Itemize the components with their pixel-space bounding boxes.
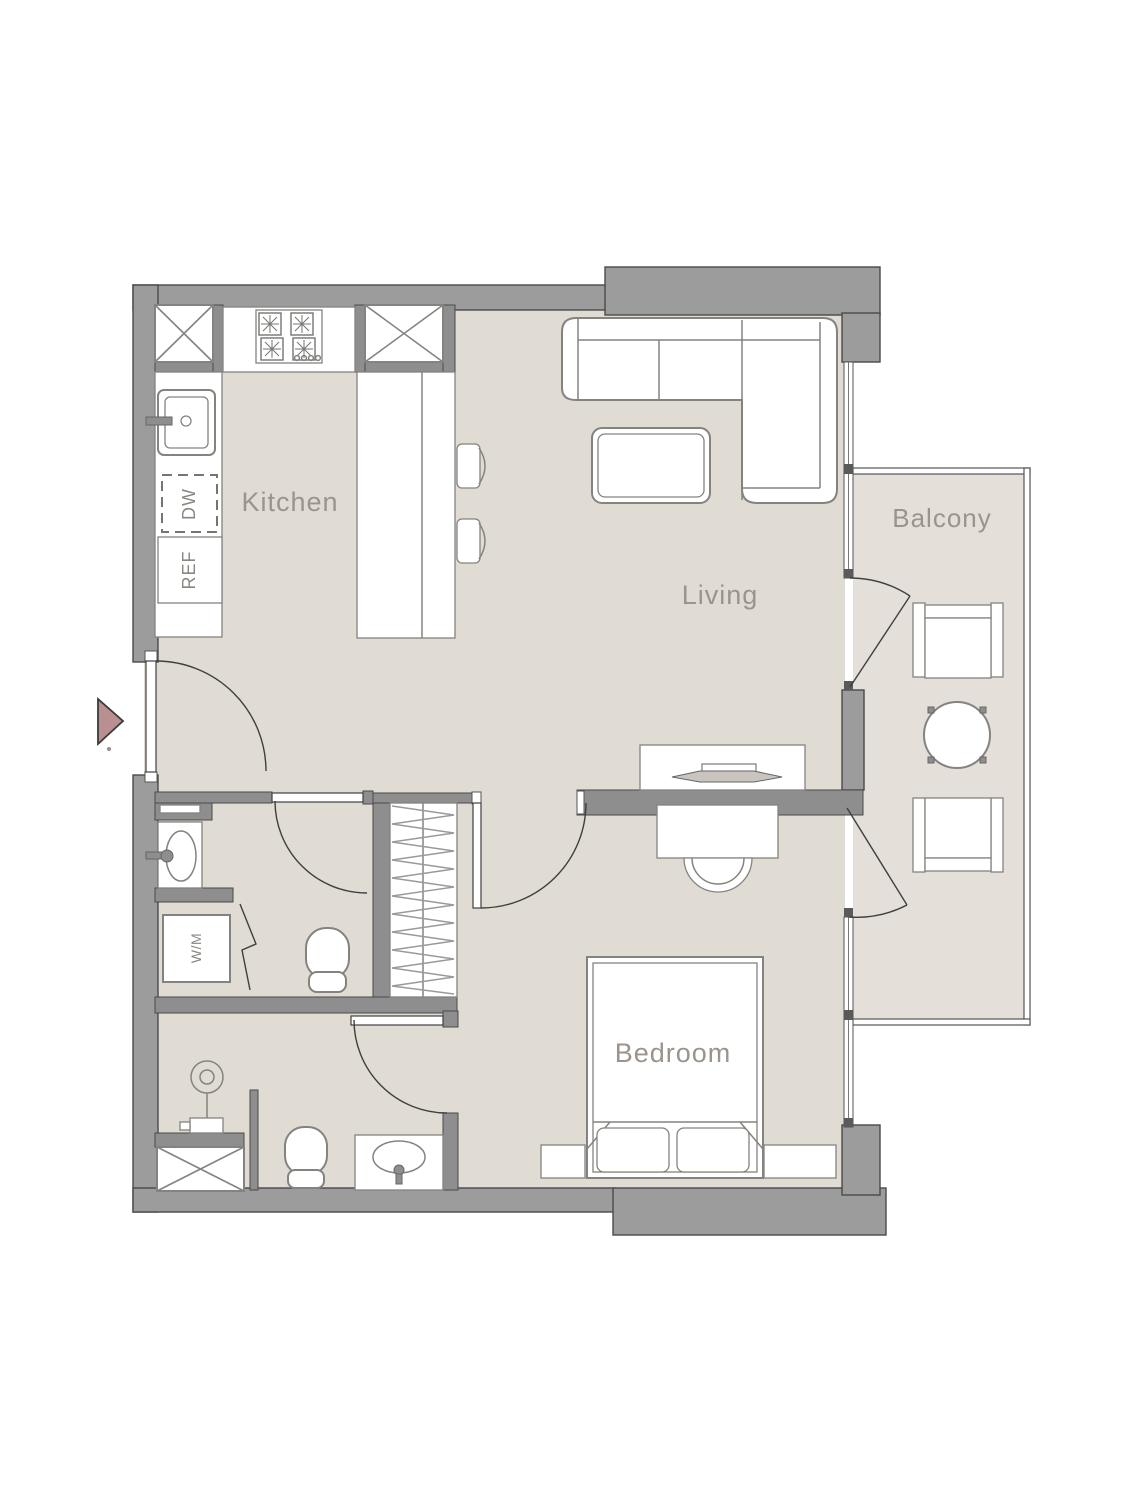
toilet-base: [309, 972, 346, 992]
chair-back: [925, 858, 991, 871]
mullion: [844, 1118, 853, 1127]
kitchen-sill-left: [155, 362, 222, 372]
wall-left-lower: [133, 775, 158, 1212]
wall-powder-mid: [155, 888, 233, 902]
shaft-box-mid: [365, 305, 443, 362]
wall-below-shower: [155, 1133, 244, 1147]
refrigerator-label: REF: [179, 551, 199, 590]
table-nub: [928, 757, 934, 763]
balcony-label: Balcony: [892, 503, 992, 533]
bathroom-vanity: [355, 1135, 443, 1190]
balcony-chair-top: [913, 603, 1003, 678]
kitchen-pier-1: [213, 305, 223, 372]
dishwasher: DW: [162, 475, 217, 532]
powder-niche-slot: [160, 805, 200, 813]
entry-bottom-jamb: [145, 772, 157, 782]
kitchen-label: Kitchen: [241, 487, 338, 517]
balcony-rail-right: [1024, 468, 1030, 1025]
chair-arm: [991, 603, 1003, 677]
shaft-box-left: [155, 305, 213, 362]
stove-icon: [256, 310, 322, 363]
table-nub: [928, 707, 934, 713]
chair-arm: [991, 798, 1003, 872]
toilet-bowl: [285, 1127, 327, 1175]
floor-areas: [144, 307, 1025, 1188]
toilet-base: [288, 1170, 324, 1188]
bathroom-door-jamb: [443, 1011, 458, 1027]
nightstand-right: [764, 1145, 836, 1178]
wall-right-bottom-block: [842, 1125, 880, 1195]
entry-door-leaf: [146, 661, 156, 772]
floor-plan: DW REF: [0, 0, 1128, 1500]
table-nub: [980, 707, 986, 713]
refrigerator: REF: [158, 537, 222, 603]
balcony-chair-bottom: [913, 798, 1003, 872]
basin-tap-stub: [146, 852, 162, 859]
wall-top-bump: [605, 267, 880, 315]
entry-arrow: [98, 699, 123, 744]
mullion: [844, 464, 853, 474]
tv-console: [640, 745, 805, 790]
desk: [657, 805, 778, 858]
bedroom-door-leaf: [473, 803, 481, 908]
chair-seat: [925, 618, 991, 678]
bathroom-door-leaf: [351, 1016, 443, 1025]
balcony-rail-bottom: [853, 1019, 1030, 1025]
wall-shower-stub: [250, 1090, 258, 1190]
bathroom-toilet-icon: [285, 1127, 327, 1188]
stool-seat: [457, 519, 480, 563]
balcony-furniture: [913, 603, 1003, 872]
sink-tap: [181, 416, 191, 426]
kitchen-pier-3: [443, 305, 455, 372]
vanity-tap-stub: [396, 1174, 402, 1184]
chair-arm: [913, 798, 925, 872]
shaft-box-bathroom: [157, 1147, 244, 1191]
coffee-table-inner: [598, 434, 704, 497]
powder-door-leaf: [272, 793, 363, 802]
wall-powder-bottom: [155, 997, 457, 1013]
wardrobe: [390, 803, 457, 997]
chair-arm: [913, 603, 925, 677]
entry-marker: [98, 699, 123, 751]
washing-machine: W/M: [163, 915, 230, 982]
mullion: [844, 569, 853, 578]
mullion: [844, 908, 853, 917]
washing-machine-label: W/M: [188, 933, 204, 963]
kitchen-pier-2: [355, 305, 365, 372]
island-counter: [357, 372, 455, 638]
wall-bathroom-east: [443, 1113, 458, 1190]
wall-powder-top: [155, 792, 272, 803]
basin-tap: [161, 850, 173, 862]
pillow: [597, 1128, 669, 1172]
table-nub: [980, 757, 986, 763]
coffee-table: [592, 428, 710, 503]
entry-marker-dot: [107, 747, 111, 751]
nightstand-left: [541, 1145, 585, 1178]
entry-top-jamb: [145, 651, 157, 661]
wall-closet-top: [365, 793, 480, 803]
closet-top-right-jamb: [472, 792, 481, 804]
wall-closet-left: [373, 803, 390, 997]
shower-base-nub: [180, 1122, 190, 1130]
sink-tap-stub: [146, 417, 172, 425]
floor-plan-page: DW REF: [0, 0, 1128, 1500]
mullion: [844, 1010, 853, 1020]
stool-seat: [457, 444, 480, 488]
shower-base: [190, 1118, 223, 1133]
pillow: [677, 1128, 749, 1172]
wall-top-right-corner: [842, 313, 880, 362]
powder-door-jamb: [363, 791, 373, 804]
wall-right-mid-block: [842, 690, 864, 790]
dishwasher-label: DW: [179, 488, 199, 520]
chair-seat: [925, 798, 991, 858]
bedroom-label: Bedroom: [615, 1038, 732, 1068]
balcony-table-icon: [924, 702, 990, 768]
balcony-rail-top: [853, 468, 1030, 474]
kitchen-sill-right: [355, 362, 455, 372]
kitchen-island: [357, 372, 455, 638]
powder-toilet-icon: [306, 928, 349, 992]
living-label: Living: [682, 580, 759, 610]
divider-left-jamb: [577, 791, 584, 814]
chair-back: [925, 605, 991, 618]
